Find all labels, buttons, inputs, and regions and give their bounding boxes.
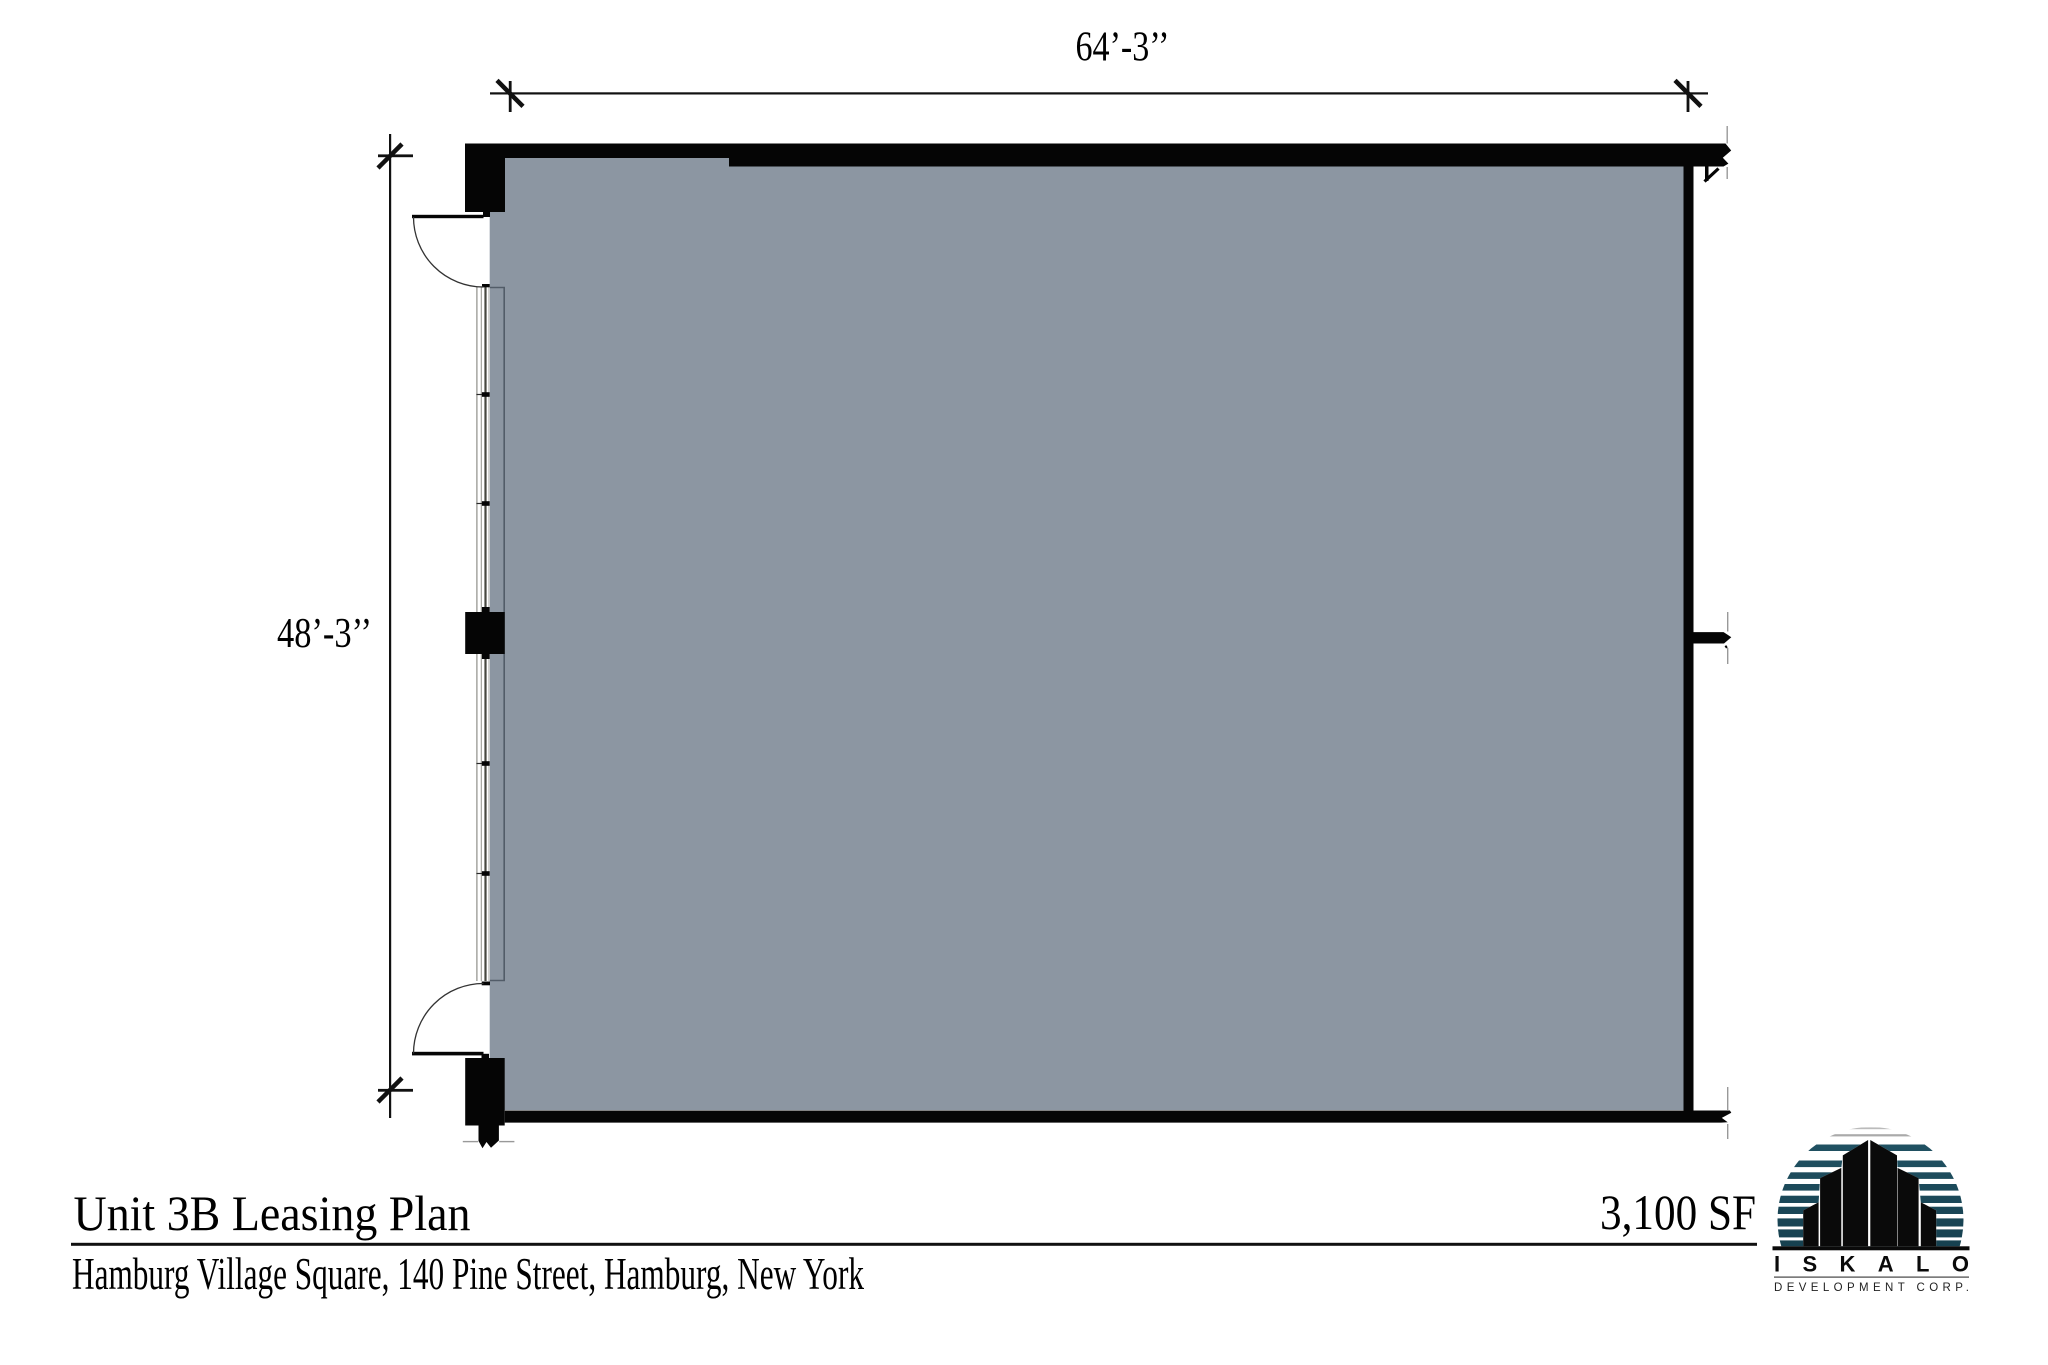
svg-text:Unit 3B Leasing Plan: Unit 3B Leasing Plan bbox=[74, 1185, 471, 1241]
svg-text:48’-3’’: 48’-3’’ bbox=[277, 611, 372, 657]
svg-text:64’-3’’: 64’-3’’ bbox=[1076, 25, 1170, 71]
svg-text:Hamburg Village Square, 140 Pi: Hamburg Village Square, 140 Pine Street,… bbox=[72, 1249, 864, 1299]
svg-text:3,100 SF: 3,100 SF bbox=[1600, 1184, 1756, 1240]
